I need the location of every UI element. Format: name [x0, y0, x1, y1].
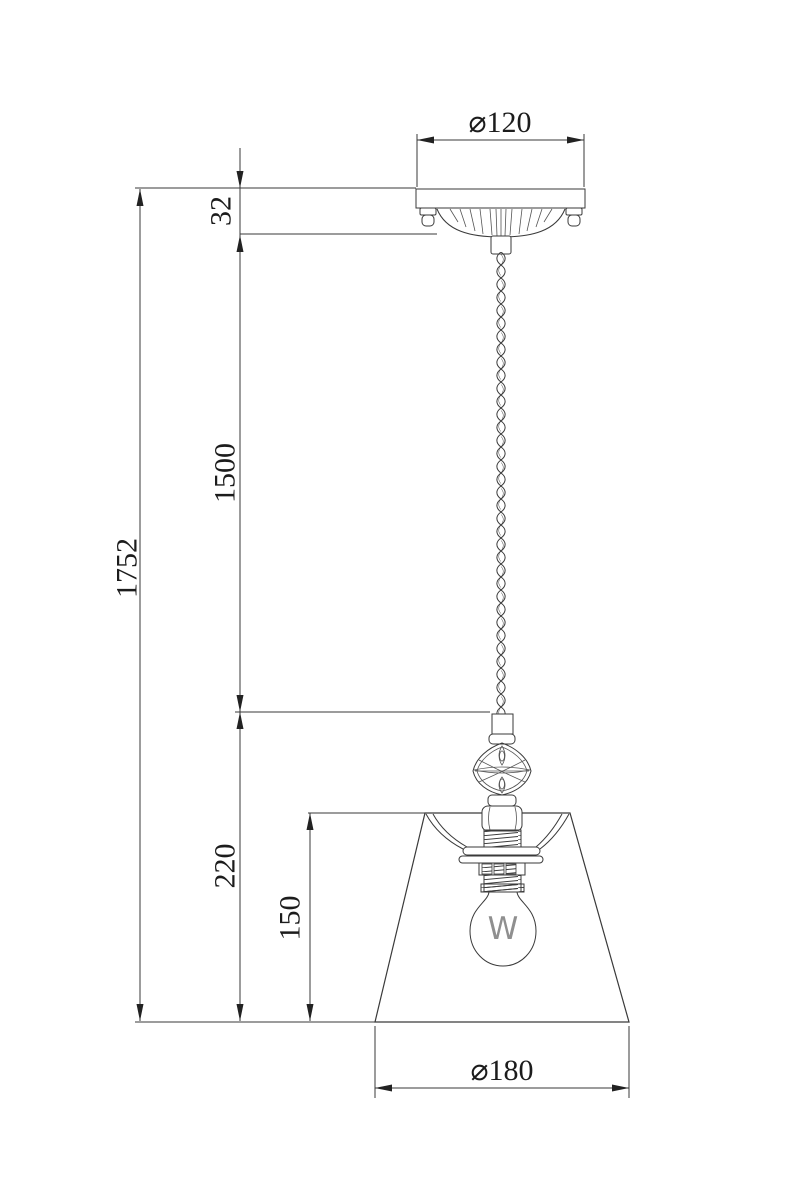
arrowhead: [137, 1004, 144, 1021]
dim-label-shade-assembly-height: 220: [209, 844, 242, 889]
arrowhead: [237, 712, 244, 729]
bulb-wattage-mark: W: [488, 911, 519, 947]
canopy-screw-left: [420, 208, 436, 226]
canopy-screw-right: [566, 208, 582, 226]
arrowhead: [307, 1004, 314, 1021]
canopy-dome-ribs: [450, 209, 552, 236]
arrowhead: [137, 189, 144, 206]
braided-cord: [493, 252, 509, 716]
dim-label-canopy-height: 32: [205, 196, 238, 226]
cage-horizontal-vesica: [474, 767, 530, 773]
lamp-socket: [459, 830, 543, 892]
pendant-lamp-dimension-drawing: W ⌀120 ⌀180: [0, 0, 800, 1200]
dim-label-cord-length: 1500: [209, 443, 242, 503]
cord-grip: [473, 714, 531, 831]
arrowhead: [375, 1085, 392, 1092]
canopy-plate: [416, 189, 585, 208]
arrowhead: [237, 695, 244, 712]
arrowhead: [612, 1085, 629, 1092]
arrowhead: [567, 137, 584, 144]
dimension-annotations: ⌀120 ⌀180 32 1500 1752 220 150: [111, 106, 630, 1098]
socket-bottom-rim: [481, 884, 524, 892]
decorative-cage: [473, 743, 531, 795]
ceiling-canopy: [416, 189, 585, 254]
shade-ring-upper: [463, 847, 540, 855]
arrowhead: [237, 1004, 244, 1021]
arrowhead: [417, 137, 434, 144]
light-bulb: W: [470, 892, 536, 966]
shade-ring-lower: [459, 856, 543, 863]
cord-connector: [491, 236, 511, 254]
dim-label-bulb-zone-height: 150: [274, 896, 307, 941]
arrowhead: [237, 171, 244, 188]
dim-label-canopy-diameter: ⌀120: [468, 106, 531, 139]
dim-label-total-height: 1752: [111, 538, 144, 598]
dim-label-shade-diameter: ⌀180: [470, 1054, 533, 1087]
arrowhead: [237, 235, 244, 252]
grip-cylinder: [492, 714, 513, 734]
arrowhead: [307, 813, 314, 830]
grip-collar-bottom: [488, 795, 516, 806]
